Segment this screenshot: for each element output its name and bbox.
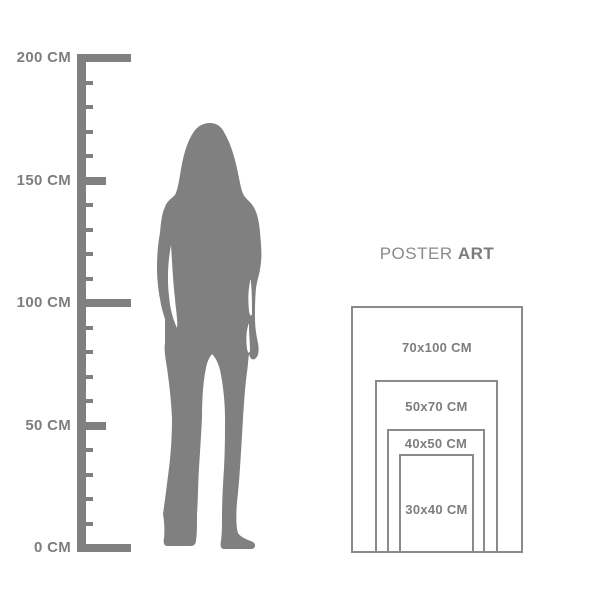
ruler-tick-minor (77, 130, 93, 134)
ruler-tick-minor (77, 277, 93, 281)
poster-panel-title: POSTER ART (341, 244, 533, 264)
ruler-tick-major (77, 544, 131, 552)
ruler-tick-minor (77, 399, 93, 403)
ruler-label-150cm: 150 CM (0, 172, 71, 190)
poster-title-bold: ART (458, 244, 494, 263)
poster-size-label-40x50: 40x50 CM (387, 436, 485, 452)
ruler-label-0cm: 0 CM (0, 539, 71, 557)
ruler-tick-minor (77, 326, 93, 330)
ruler-tick-minor (77, 448, 93, 452)
ruler-tick-medium (77, 177, 106, 185)
ruler-tick-minor (77, 497, 93, 501)
height-ruler: 200 CM 150 CM 100 CM 50 CM 0 CM (0, 0, 140, 600)
ruler-tick-minor (77, 81, 93, 85)
ruler-label-100cm: 100 CM (0, 294, 71, 312)
poster-size-label-30x40: 30x40 CM (399, 502, 474, 518)
poster-size-label-70x100: 70x100 CM (351, 340, 523, 356)
ruler-label-50cm: 50 CM (0, 417, 71, 435)
woman-silhouette-icon (156, 121, 262, 551)
ruler-tick-minor (77, 473, 93, 477)
poster-title-regular: POSTER (380, 244, 453, 263)
ruler-tick-minor (77, 105, 93, 109)
ruler-tick-major (77, 299, 131, 307)
ruler-tick-medium (77, 422, 106, 430)
ruler-tick-minor (77, 203, 93, 207)
ruler-tick-minor (77, 522, 93, 526)
poster-size-label-50x70: 50x70 CM (375, 399, 498, 415)
ruler-tick-minor (77, 252, 93, 256)
ruler-tick-minor (77, 350, 93, 354)
ruler-tick-minor (77, 154, 93, 158)
ruler-tick-major (77, 54, 131, 62)
ruler-label-200cm: 200 CM (0, 49, 71, 67)
ruler-tick-minor (77, 375, 93, 379)
woman-silhouette-path (157, 123, 261, 549)
ruler-tick-minor (77, 228, 93, 232)
